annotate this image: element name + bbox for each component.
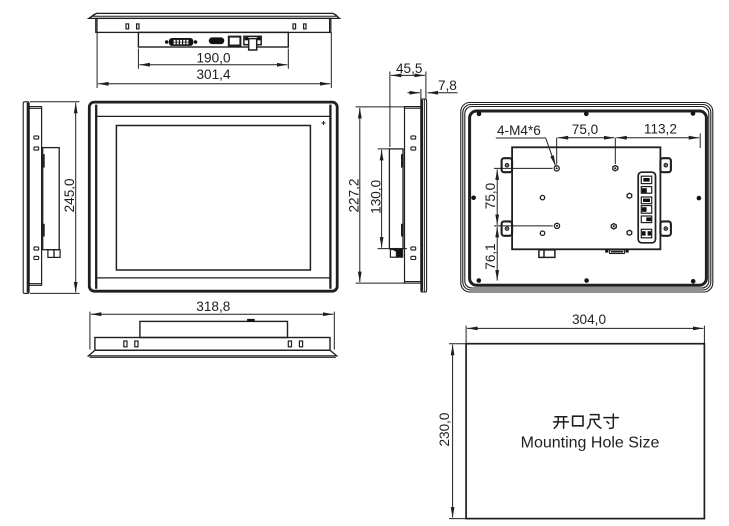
svg-text:75,0: 75,0	[572, 122, 599, 137]
svg-text:230,0: 230,0	[437, 412, 452, 446]
svg-text:301,4: 301,4	[196, 67, 230, 82]
svg-text:190,0: 190,0	[196, 51, 230, 66]
svg-text:45,5: 45,5	[396, 61, 422, 76]
svg-text:113,2: 113,2	[644, 122, 677, 137]
svg-text:7,8: 7,8	[438, 78, 457, 93]
svg-text:76,1: 76,1	[483, 243, 498, 269]
svg-text:318,8: 318,8	[196, 299, 230, 314]
svg-text:Mounting Hole Size: Mounting Hole Size	[521, 435, 660, 452]
svg-text:227,2: 227,2	[347, 178, 362, 212]
svg-text:75,0: 75,0	[483, 182, 498, 209]
svg-text:4-M4*6: 4-M4*6	[497, 123, 541, 138]
svg-text:245,0: 245,0	[62, 178, 77, 212]
svg-text:304,0: 304,0	[572, 312, 606, 327]
svg-text:130,0: 130,0	[368, 179, 383, 213]
